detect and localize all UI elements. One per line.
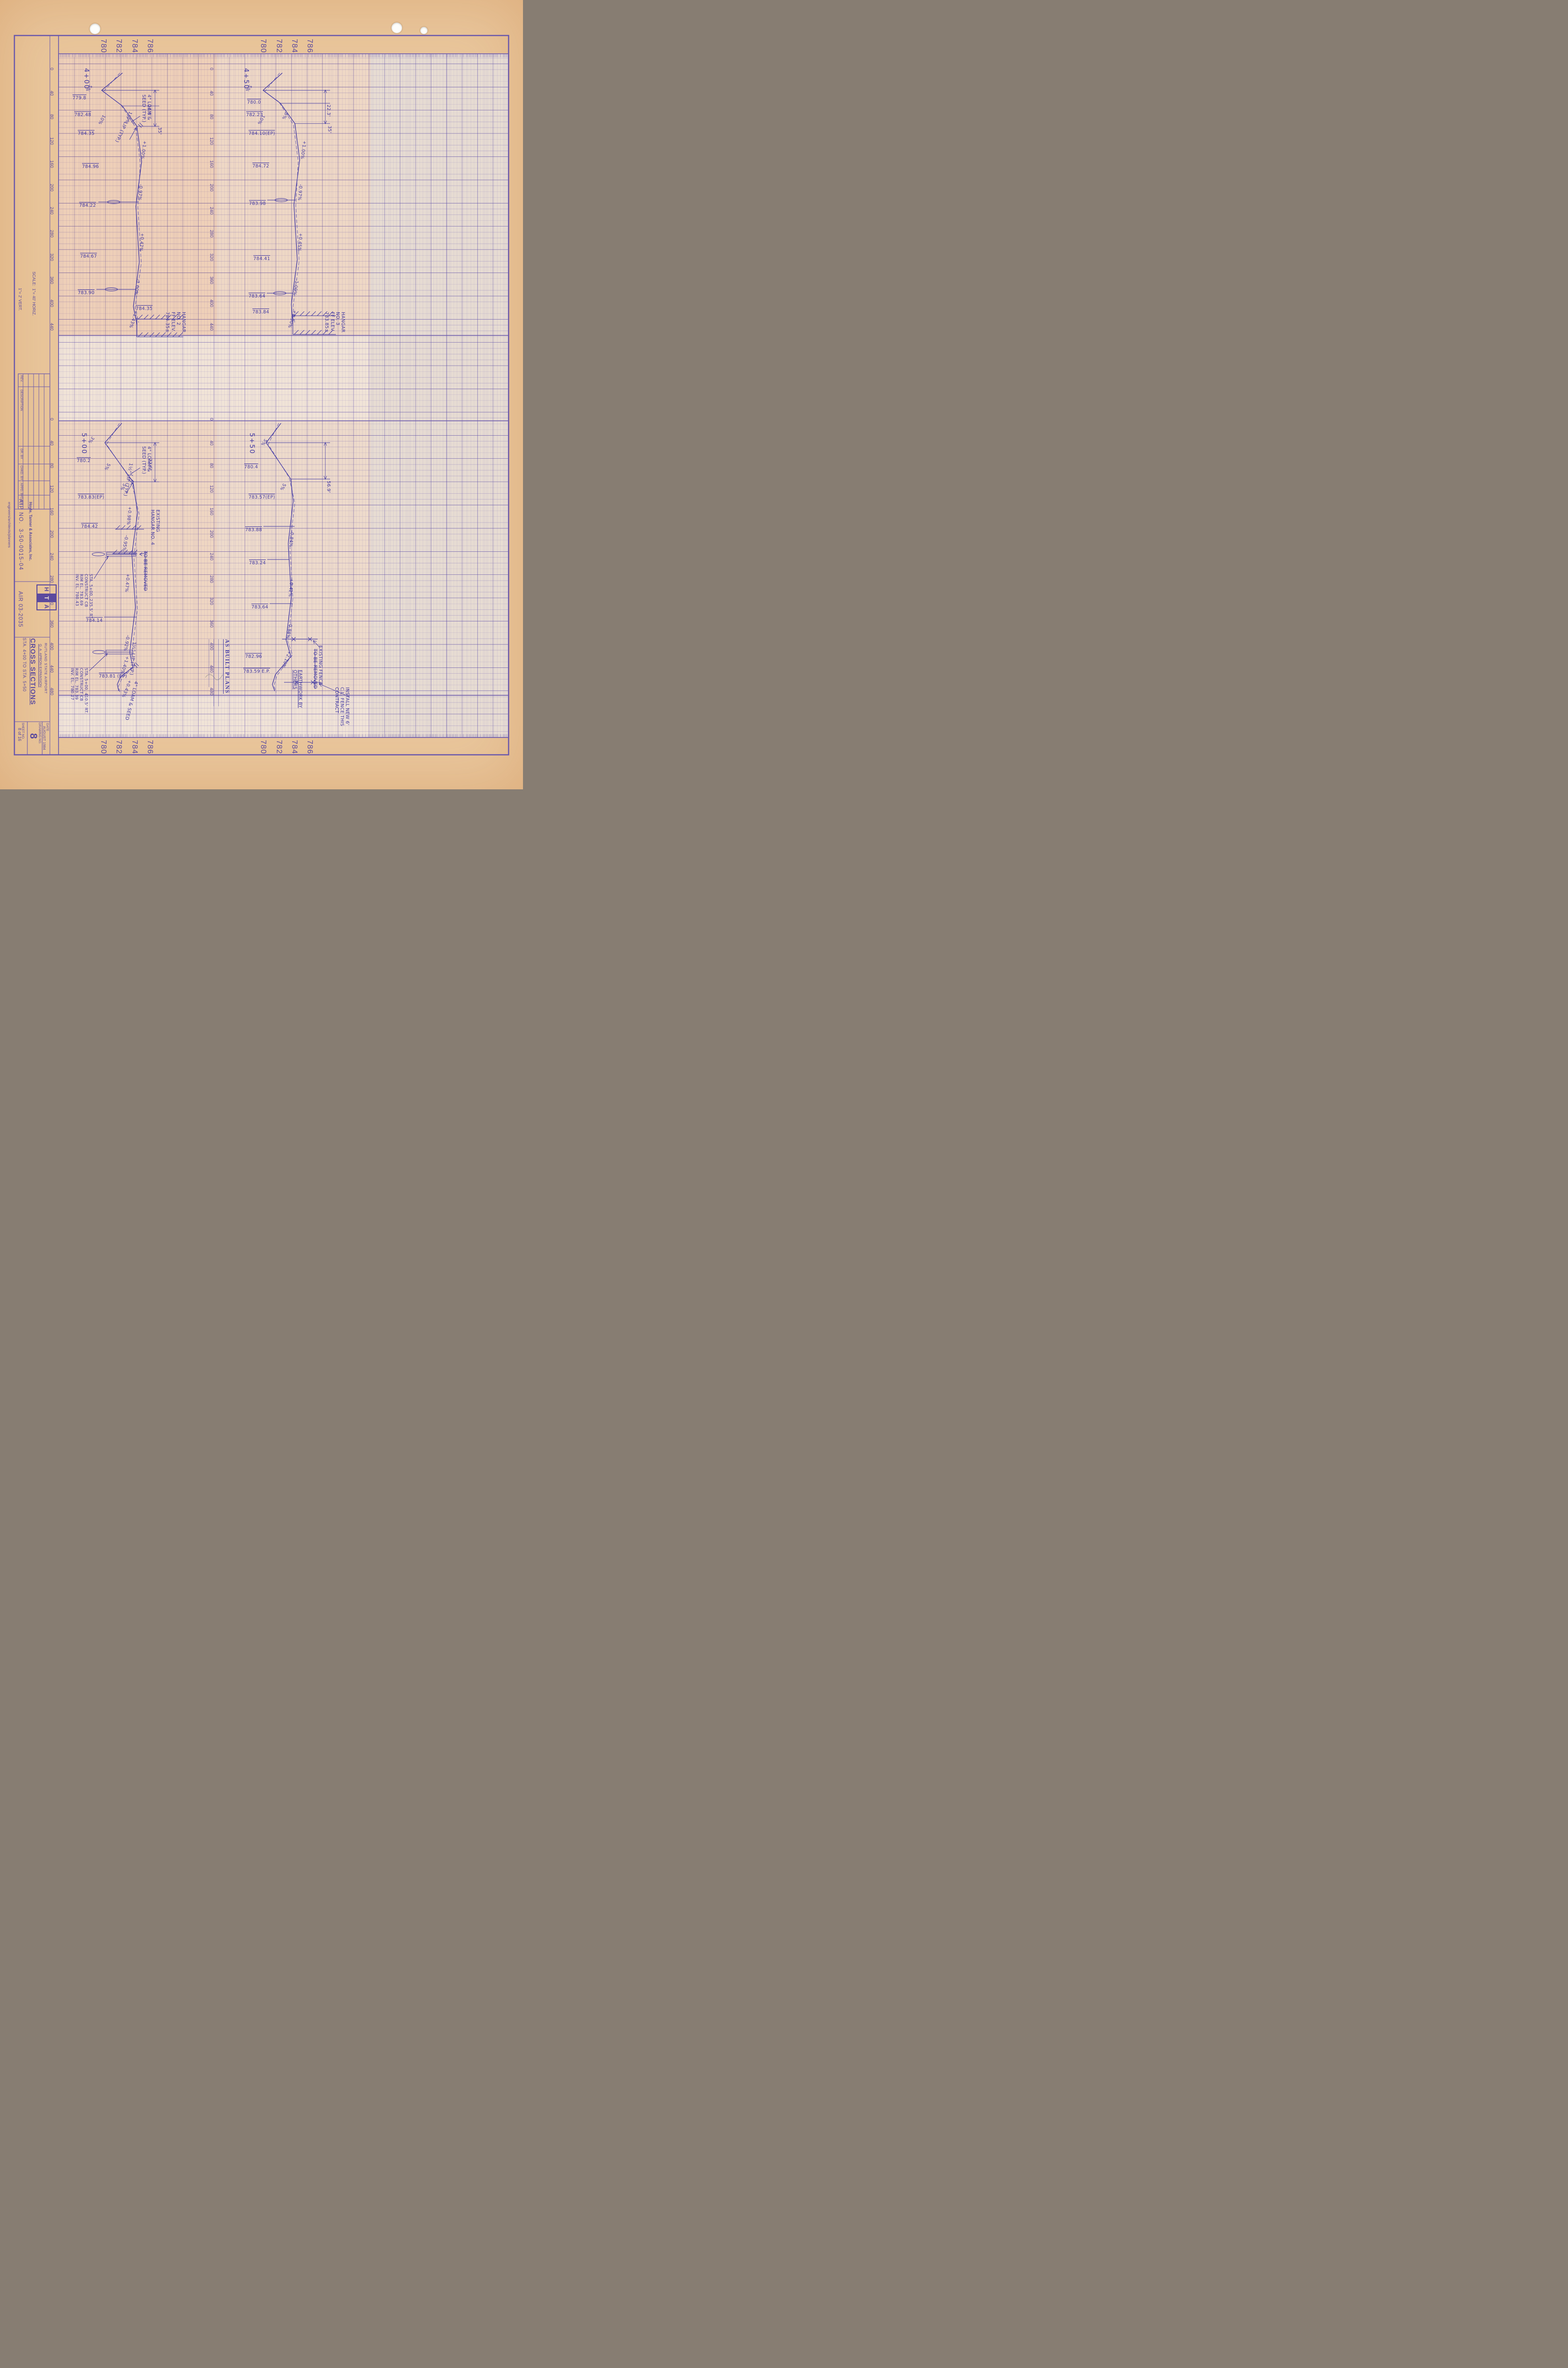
cb-callout-1: STA. 5+00, 235.5' RT. CONSTRUCT CB RIM E… [74, 574, 93, 619]
date-value: AUGUST 1984 [42, 726, 46, 750]
elevation-callout: 783.64 [251, 604, 268, 610]
elevation-callout: 784.22 [79, 202, 96, 208]
company-block: Hoyle, Tanner & Associates, Inc. enginee… [0, 502, 50, 561]
dimension-label: 56.9' [326, 481, 331, 493]
punch-hole [392, 23, 402, 33]
slope-label: +0.47% [123, 573, 130, 592]
dimension-label: 72.6' [147, 458, 153, 470]
rev-header-rev: REV. [19, 375, 23, 382]
slope-label: -1.00% [132, 278, 140, 295]
station-label-5-00: 5+00 [80, 433, 87, 454]
slope-label: 5% [259, 438, 268, 447]
project-phase: G. A. APRON EXPANSION [38, 644, 42, 687]
slope-label: +1.43% [128, 309, 138, 329]
slope-label: -1.00% [291, 278, 299, 295]
sheet-subtitle: STA. 4+00 TO STA. 5+50 [22, 638, 27, 691]
rev-header-chkd-by: CHKD. BY [19, 465, 23, 480]
slope-label: +1.40% [119, 655, 130, 675]
punch-hole [90, 24, 100, 34]
elevation-callout: 780.0 [247, 99, 261, 105]
install-fence-note: INSTALL NEW 6' C.L. FENCE THIS CONTRACT [333, 687, 350, 726]
scale-note: SCALE: 1"= 40' HORIZ. 1"= 2' VERT. [9, 272, 45, 316]
company-tagline: engineers/architects/planners [7, 502, 11, 561]
elevation-callout: 783.57(EP) [249, 494, 275, 500]
lip-note: 1½" LIP (TYP.) [129, 642, 137, 676]
to-be-removed-note: TO BE REMOVED [312, 649, 318, 689]
lip-note: 1½" LIP (TYP.) [114, 110, 133, 143]
rev-header-description: DESCRIPTION [19, 390, 23, 411]
sheet-title: CROSS SECTIONS [29, 638, 37, 705]
drawing-no-value: 8 [27, 733, 39, 739]
stamp-title: AS BUILT PLANS [223, 639, 230, 694]
earthwork-note: EARTHWORK BY OTHERS [292, 670, 303, 708]
annotations: 4+00779.8782.48784.35784.96784.22784.677… [0, 0, 523, 789]
slope-label: +1.00% [139, 140, 147, 159]
elevation-callout: 780.2 [77, 457, 91, 464]
project-name: RUTLAND STATE AIRPORT [44, 643, 48, 694]
air-number: AIR 03-2035 [17, 591, 23, 628]
elevation-callout: 784.41 [253, 255, 270, 262]
station-label-5-50: 5+50 [248, 433, 255, 454]
existing-fence-note: EXISTING FENCE [318, 645, 323, 685]
slope-label: -0.92% [122, 634, 130, 652]
elevation-callout: 780.4 [244, 464, 258, 470]
hangar-3-note: HANGAR NO. 3 FF ELEV. 783.85± [324, 312, 345, 333]
scale-vert: 1"= 2' VERT. [18, 272, 23, 316]
slope-label: -0.97% [296, 184, 303, 201]
elevation-callout: 783.83(EP) [78, 494, 104, 500]
elevation-callout: 779.8 [72, 95, 86, 101]
stamp-line [214, 639, 218, 706]
scale-horiz: SCALE: 1"= 40' HORIZ. [31, 272, 36, 316]
elevation-callout: 782.48 [74, 111, 91, 118]
dimension-label: 22.3' [326, 105, 331, 117]
slope-label: +2.10% [280, 650, 292, 669]
elevation-callout: 783.84 [252, 309, 269, 315]
slope-label: 10% [96, 114, 106, 125]
slope-label: 3% [86, 435, 95, 444]
slope-label: +0.45% [296, 233, 303, 251]
aip-number: AIP NO. 3-50-0015-04 [17, 499, 24, 571]
drawing-sheet: 7807807827827847847867867807807827827847… [0, 0, 523, 789]
dimension-label: 26.8' [146, 105, 152, 117]
hta-logo: H T A [36, 584, 57, 610]
existing-hangar-4-note: EXISTING HANGAR NO. 4 [150, 510, 160, 545]
slope-label: 5% [280, 111, 288, 120]
elevation-callout: 783.90 [78, 289, 95, 296]
slope-label: 5% [103, 462, 111, 471]
rev-header-appd-by: APPD. BY [19, 483, 23, 497]
elevation-callout: 783.59 E.P. [243, 668, 270, 674]
elevation-callout: 784.10(EP) [249, 130, 275, 136]
dimension-label: 35' [327, 126, 332, 133]
elevation-callout: 783.24 [249, 559, 266, 566]
slope-label: +0.50% [286, 309, 297, 329]
sheet-no-value: 8 of 16 [17, 728, 22, 741]
company-name: Hoyle, Tanner & Associates, Inc. [28, 502, 33, 561]
elevation-callout: 783.98 [249, 200, 266, 206]
elevation-callout: 784.72 [252, 163, 269, 169]
punch-hole [420, 27, 428, 34]
slope-label: -0.88% [285, 622, 293, 639]
logo-letter-a: A [43, 597, 50, 616]
elevation-callout: 783.64 [249, 293, 265, 299]
slope-label: -0.95% [120, 535, 129, 552]
rev-header-dr-by: DR. BY [19, 449, 23, 459]
stamp-line [218, 639, 223, 706]
dimension-label: 35' [157, 127, 162, 135]
slope-label: +1.00% [299, 140, 307, 159]
hangar-2-note: HANGAR NO. 2 FF ELEV. 784.35± [165, 312, 186, 333]
slope-label: +0.98% [125, 506, 132, 525]
slope-label: 5% [278, 482, 286, 491]
slope-label: -0.97% [136, 184, 143, 201]
elevation-callout: 782.96 [245, 653, 262, 659]
cb-callout-2: STA. 5+00, 410.5' RT. CONSTRUCT CB RIM E… [70, 668, 88, 714]
lip-note: 1½" LIP (TYP.) [122, 463, 133, 497]
slope-label: -0.84% [287, 530, 294, 547]
elevation-callout: 784.42 [81, 523, 98, 529]
slope-label: +0.42% [287, 578, 294, 597]
as-built-stamp: AS BUILT PLANS [209, 639, 232, 712]
stamp-line [209, 639, 214, 687]
elevation-callout: 783.88 [245, 526, 262, 533]
to-be-removed-note: TO BE REMOVED [143, 551, 148, 591]
slope-label: +0.47% [138, 233, 144, 251]
elevation-callout: 784.96 [82, 163, 99, 169]
elevation-callout: 784.35 [78, 130, 95, 136]
elevation-callout: 784.67 [80, 253, 97, 259]
